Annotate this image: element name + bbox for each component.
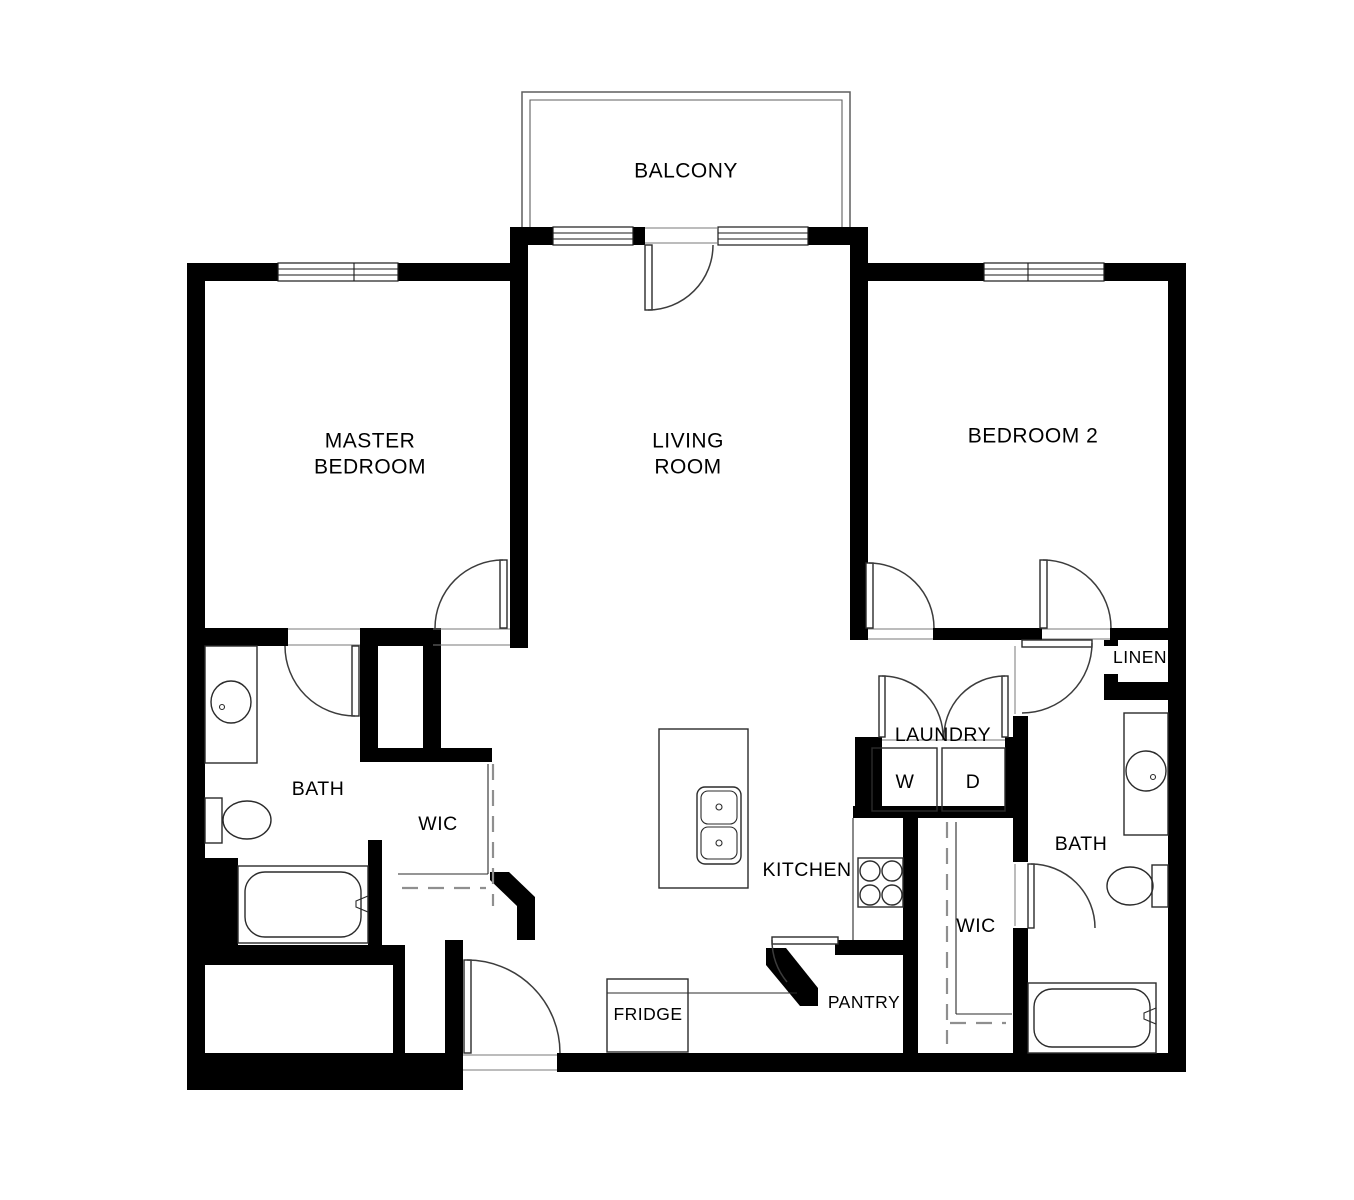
label-bedroom2: BEDROOM 2: [968, 425, 1099, 448]
label-bath-bedroom2: BATH: [1055, 833, 1108, 855]
label-master-bedroom-line2: BEDROOM: [314, 456, 426, 479]
window-master-bedroom: [278, 263, 398, 281]
label-dryer: D: [966, 771, 981, 793]
window-living-right: [718, 227, 808, 245]
label-kitchen: KITCHEN: [762, 859, 851, 881]
floor-plan-page: BALCONY MASTER BEDROOM LIVING ROOM BEDRO…: [0, 0, 1354, 1200]
label-bath-master: BATH: [292, 778, 345, 800]
label-master-bedroom-line1: MASTER: [325, 430, 416, 453]
label-linen: LINEN: [1113, 647, 1167, 667]
label-living-room-line1: LIVING: [652, 430, 724, 453]
label-living-room-line2: ROOM: [654, 456, 721, 479]
label-wic-bedroom2: WIC: [956, 915, 995, 937]
label-pantry: PANTRY: [828, 992, 900, 1012]
label-wic-master: WIC: [418, 813, 457, 835]
label-washer: W: [896, 771, 915, 793]
label-fridge: FRIDGE: [613, 1004, 682, 1024]
window-bedroom2: [984, 263, 1104, 281]
label-laundry: LAUNDRY: [895, 724, 991, 746]
label-balcony: BALCONY: [634, 160, 738, 183]
window-living-left: [553, 227, 633, 245]
floor-plan: BALCONY MASTER BEDROOM LIVING ROOM BEDRO…: [0, 0, 1354, 1200]
